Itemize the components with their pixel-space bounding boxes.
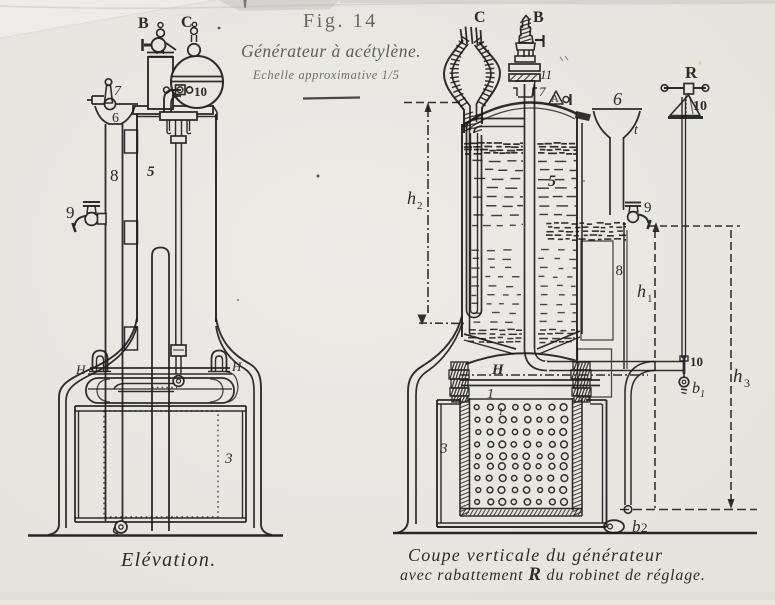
svg-text:Coupe verticale du générateur: Coupe verticale du générateur (408, 545, 663, 565)
svg-text:5: 5 (147, 164, 155, 180)
svg-text:B: B (138, 15, 149, 32)
svg-text:10: 10 (194, 84, 207, 99)
svg-text:avec rabattement R du robinet: avec rabattement R du robinet de réglage… (400, 564, 706, 585)
svg-text:8: 8 (616, 263, 624, 279)
svg-text:H: H (75, 362, 86, 377)
svg-text:h: h (637, 281, 646, 301)
svg-text:A: A (551, 93, 559, 105)
svg-text:Générateur à acétylène.: Générateur à acétylène. (241, 41, 421, 61)
svg-text:C: C (474, 9, 486, 26)
svg-text:3: 3 (744, 376, 750, 390)
svg-text:9: 9 (66, 203, 75, 222)
svg-text:7: 7 (114, 84, 122, 99)
svg-text:h: h (733, 366, 743, 387)
svg-text:7: 7 (539, 84, 546, 99)
svg-text:H: H (231, 359, 242, 374)
svg-text:B: B (533, 9, 544, 26)
svg-text:b: b (692, 380, 700, 397)
svg-text:1: 1 (498, 406, 504, 418)
svg-text:C: C (181, 14, 193, 31)
svg-text:8: 8 (110, 166, 119, 185)
svg-text:1: 1 (487, 387, 494, 402)
svg-text:R: R (685, 63, 698, 82)
svg-text:Elévation.: Elévation. (120, 549, 217, 571)
svg-text:6: 6 (112, 111, 119, 126)
svg-text:3: 3 (439, 441, 448, 457)
svg-text:H: H (491, 362, 505, 378)
svg-text:10: 10 (690, 354, 703, 369)
svg-text:6: 6 (613, 89, 622, 109)
svg-text:3: 3 (224, 451, 233, 467)
svg-text:Fig. 14: Fig. 14 (303, 10, 378, 32)
svg-text:Echelle approximative 1/5: Echelle approximative 1/5 (252, 68, 399, 82)
svg-text:5: 5 (548, 173, 556, 190)
svg-text:1: 1 (647, 293, 653, 305)
svg-text:2: 2 (417, 200, 423, 212)
svg-text:9: 9 (644, 200, 652, 216)
svg-text:h: h (407, 188, 416, 208)
svg-text:1: 1 (700, 389, 705, 400)
svg-text:11: 11 (540, 67, 552, 82)
svg-text:10: 10 (693, 99, 707, 114)
